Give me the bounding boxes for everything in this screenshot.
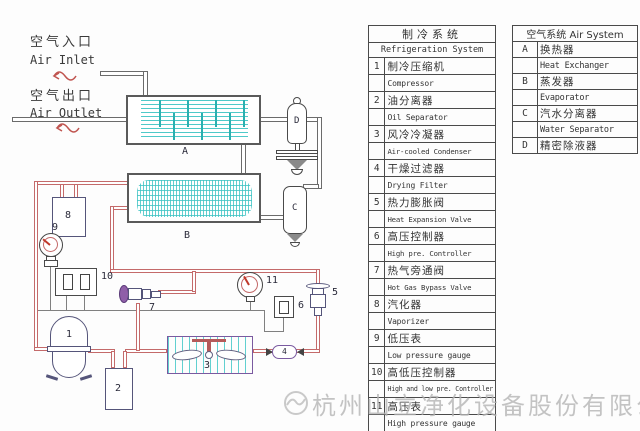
- part-no: [513, 90, 538, 106]
- part-name-cn: 蒸发器: [538, 74, 638, 90]
- part-name-cn: 热气旁通阀: [385, 262, 496, 279]
- table-title: 空气系统 Air System: [513, 26, 638, 42]
- flow-arrow-icon: [297, 348, 304, 356]
- part-no: [369, 381, 385, 398]
- sense-line: [66, 296, 67, 310]
- vessel-c-cup: [290, 242, 300, 247]
- baffle: [187, 100, 189, 127]
- part-name-en: High pre. Controller: [385, 245, 496, 262]
- part-no: 9: [369, 330, 385, 347]
- label-1: 1: [66, 330, 72, 340]
- label-11: 11: [266, 276, 278, 286]
- vessel-c-funnel: [287, 234, 303, 242]
- part-name-en: High pressure gauge: [385, 415, 496, 431]
- fan-hub: [205, 351, 213, 359]
- part-no: 10: [369, 364, 385, 381]
- compressor-foot: [80, 374, 92, 381]
- part-no: D: [513, 138, 538, 154]
- part-no: 5: [369, 194, 385, 211]
- part-name-cn: 高压表: [385, 398, 496, 415]
- pipe-separator-stub: [123, 351, 127, 368]
- part-name-en: Heat Expansion Valve: [385, 211, 496, 228]
- baffle: [215, 100, 217, 127]
- vessel-d-flange: [276, 150, 318, 154]
- part-name-cn: 制冷压缩机: [385, 58, 496, 75]
- gauge-stem: [246, 296, 255, 302]
- label-4: 4: [282, 348, 287, 356]
- part-name-cn: 干燥过滤器: [385, 160, 496, 177]
- label-c: C: [292, 204, 297, 213]
- gauge-fitting: [44, 260, 58, 267]
- label-9: 9: [52, 223, 58, 233]
- sense-line: [250, 301, 251, 310]
- part-name-cn: 换热器: [538, 42, 638, 58]
- part-name-cn: 热力膨胀阀: [385, 194, 496, 211]
- part-name-en: Hot Gas Bypass Valve: [385, 279, 496, 296]
- air-parts-table: 空气系统 Air System A换热器 Heat Exchanger B蒸发器…: [512, 25, 638, 154]
- sense-line: [84, 296, 85, 310]
- flow-arrow-icon: [52, 70, 78, 82]
- label-b: B: [184, 231, 190, 241]
- part-no: [369, 177, 385, 194]
- part-name-cn: 高低压控制器: [385, 364, 496, 381]
- pipe-separator-to-condenser: [125, 349, 167, 353]
- label-7: 7: [149, 303, 155, 313]
- pipe-air-inlet-horizontal: [100, 71, 148, 76]
- expansion-valve-5-body: [310, 294, 326, 308]
- refrigeration-parts-table: 制冷系统 Refrigeration System 1制冷压缩机 Compres…: [368, 25, 496, 431]
- part-no: [369, 75, 385, 92]
- part-name-en: Drying Filter: [385, 177, 496, 194]
- pipe-air-inlet-vertical: [143, 71, 148, 98]
- pipe-bypass-horizontal: [158, 290, 196, 294]
- label-8: 8: [65, 211, 71, 221]
- part-no: [369, 313, 385, 330]
- part-name-en: Air-cooled Condenser: [385, 143, 496, 160]
- evaporator-b: [127, 173, 261, 223]
- evaporator-coil: [137, 180, 252, 217]
- part-no: [513, 122, 538, 138]
- exchanger-tubes: [141, 100, 248, 140]
- pipe-suction-top: [34, 181, 138, 185]
- table-subtitle: Refrigeration System: [369, 43, 496, 58]
- high-low-pressure-controller-10: [55, 268, 97, 296]
- part-no: [369, 109, 385, 126]
- air-inlet-label-en: Air Inlet: [30, 54, 95, 66]
- part-name-en: High and low pre. Controller: [385, 381, 496, 398]
- part-no: [369, 245, 385, 262]
- flow-arrow-icon: [55, 122, 81, 134]
- controller-window: [279, 301, 289, 314]
- part-name-en: Vaporizer: [385, 313, 496, 330]
- baffle: [201, 113, 203, 140]
- pipe-separator-stub: [111, 351, 115, 368]
- part-name-cn: 精密除液器: [538, 138, 638, 154]
- vessel-d-cup: [291, 169, 303, 175]
- label-d: D: [294, 117, 299, 126]
- part-name-en: Low pressure gauge: [385, 347, 496, 364]
- baffle: [229, 113, 231, 140]
- pipe-b-to-c: [259, 215, 285, 220]
- controller-window: [80, 274, 90, 290]
- part-no: 1: [369, 58, 385, 75]
- baffle: [173, 113, 175, 140]
- label-6: 6: [298, 301, 304, 311]
- schematic-canvas: 空气入口 Air Inlet 空气出口 Air Outlet: [0, 0, 640, 431]
- part-no: [369, 347, 385, 364]
- bypass-valve-7-body: [142, 289, 151, 299]
- low-pressure-gauge-9: [39, 233, 63, 257]
- part-name-en: Heat Exchanger: [538, 58, 638, 74]
- part-name-cn: 高压控制器: [385, 228, 496, 245]
- part-no: 11: [369, 398, 385, 415]
- part-name-cn: 低压表: [385, 330, 496, 347]
- part-name-cn: 汽化器: [385, 296, 496, 313]
- heat-exchanger-a: [126, 95, 261, 145]
- part-no: C: [513, 106, 538, 122]
- expansion-valve-5-tip: [314, 307, 322, 316]
- air-outlet-label-cn: 空气出口: [30, 90, 94, 103]
- part-no: [369, 211, 385, 228]
- pipe-bypass-tee: [192, 271, 196, 292]
- part-no: 8: [369, 296, 385, 313]
- part-no: 7: [369, 262, 385, 279]
- part-no: 4: [369, 160, 385, 177]
- label-a: A: [182, 147, 188, 157]
- part-no: A: [513, 42, 538, 58]
- label-5: 5: [332, 288, 338, 298]
- high-pressure-controller-6: [274, 296, 294, 318]
- pipe-a-to-d: [260, 117, 288, 122]
- pipe-liquid-run: [110, 269, 320, 273]
- sense-line: [264, 310, 265, 332]
- pipe-air-outlet: [12, 117, 127, 122]
- bypass-valve-7-outlet: [151, 291, 161, 298]
- part-no: 6: [369, 228, 385, 245]
- part-name-en: Evaporator: [538, 90, 638, 106]
- compressor-1-bowl: [52, 351, 86, 378]
- pipe-a-to-b: [241, 143, 246, 174]
- label-3: 3: [204, 361, 210, 371]
- sense-line: [50, 266, 51, 310]
- table-title: 制冷系统: [369, 26, 496, 43]
- pipe-suction-down: [34, 181, 38, 351]
- part-no: [513, 58, 538, 74]
- part-name-cn: 风冷冷凝器: [385, 126, 496, 143]
- pipe-bypass-riser: [136, 303, 140, 351]
- baffle: [243, 100, 245, 127]
- pipe-evap-feed-vertical: [110, 206, 114, 273]
- part-no: [369, 279, 385, 296]
- company-logo-watermark: [283, 389, 310, 416]
- air-inlet-label-cn: 空气入口: [30, 36, 94, 49]
- part-no: B: [513, 74, 538, 90]
- fan-blade: [216, 348, 247, 362]
- baffle: [159, 100, 161, 127]
- part-name-en: Oil Separator: [385, 109, 496, 126]
- part-no: [369, 143, 385, 160]
- part-name-en: Water Separator: [538, 122, 638, 138]
- part-no: [369, 415, 385, 431]
- part-no: 2: [369, 92, 385, 109]
- fan-blade: [172, 348, 203, 362]
- sense-line: [283, 318, 284, 332]
- label-2: 2: [115, 384, 121, 394]
- part-no: 3: [369, 126, 385, 143]
- part-name-en: Compressor: [385, 75, 496, 92]
- sense-line: [264, 331, 284, 332]
- part-name-cn: 油分离器: [385, 92, 496, 109]
- part-name-cn: 汽水分离器: [538, 106, 638, 122]
- label-10: 10: [101, 272, 113, 282]
- compressor-foot: [46, 374, 58, 381]
- bypass-valve-7-body: [128, 288, 142, 300]
- high-pressure-gauge-11: [237, 272, 263, 298]
- controller-window: [63, 274, 73, 290]
